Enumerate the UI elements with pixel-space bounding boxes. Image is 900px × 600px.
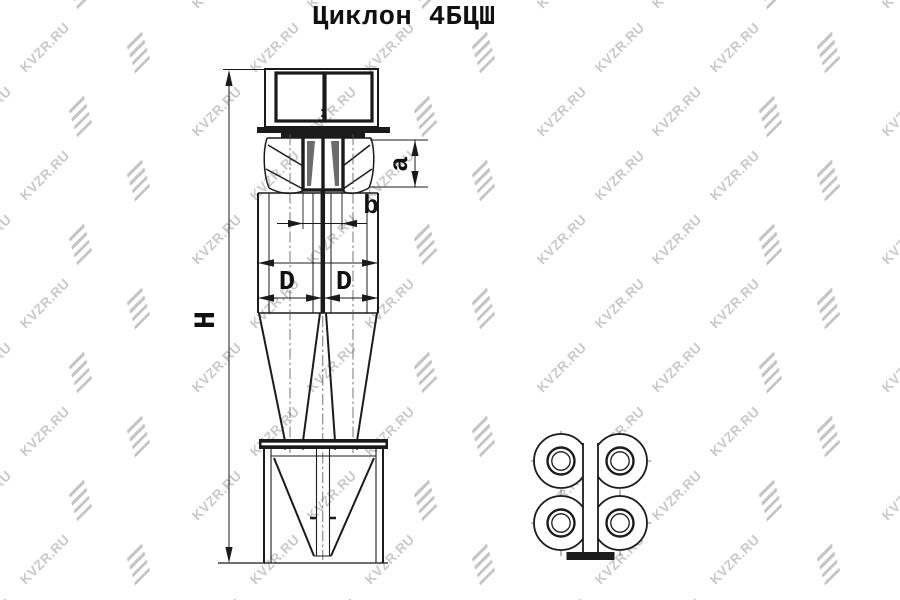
screenshot-root: KVZR.RUKVZR.RUKVZR.RUKVZR.RUKVZR.RUKVZR.…	[0, 0, 900, 600]
cone-sections	[259, 313, 377, 450]
front-view: H a b D D	[190, 69, 428, 563]
dim-label-inlet-width: b	[363, 191, 379, 221]
d-dimensions	[258, 259, 378, 301]
dim-label-inlet-height: a	[385, 156, 415, 172]
dim-label-height: H	[190, 311, 224, 329]
cylinder-bodies	[258, 190, 378, 313]
dim-label-diameter-right: D	[336, 268, 352, 298]
dust-bunker	[259, 439, 388, 563]
duct-base	[567, 552, 615, 560]
top-view	[531, 431, 651, 560]
page-title: Циклон 4БЦШ	[312, 3, 496, 33]
h-dimension	[223, 70, 300, 564]
dim-label-diameter-left: D	[279, 268, 295, 298]
outlet-box	[265, 69, 378, 127]
inlet-pipes	[303, 137, 343, 190]
technical-drawing: H a b D D	[0, 0, 900, 600]
